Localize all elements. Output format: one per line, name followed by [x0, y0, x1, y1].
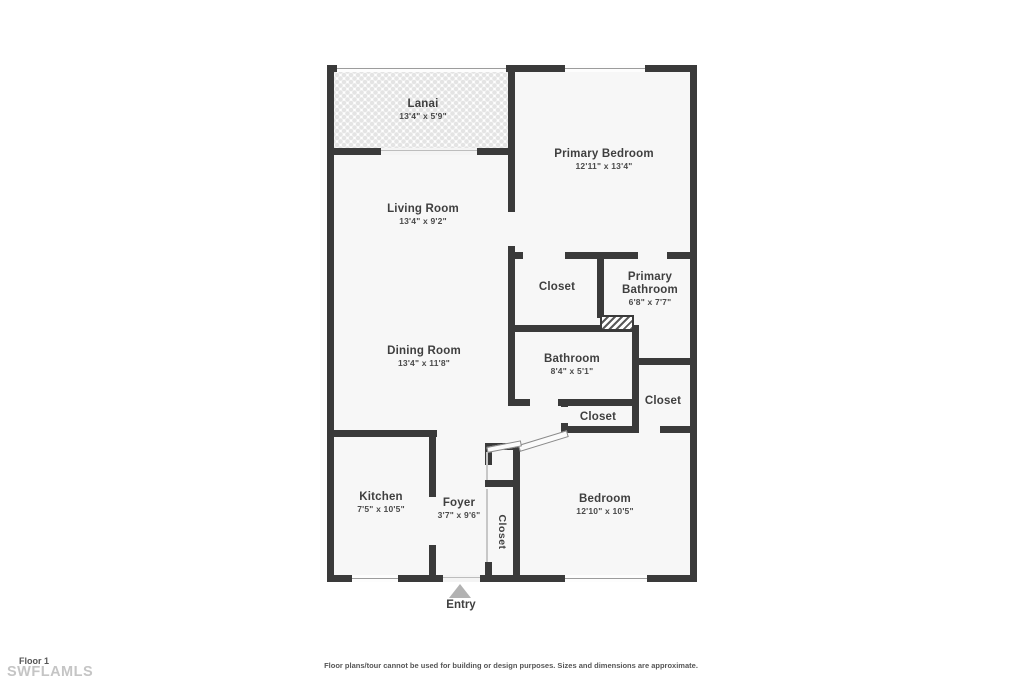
window-bedroom — [565, 575, 647, 582]
room-dims: 12'10" x 10'5" — [576, 506, 633, 517]
door-right-closet — [639, 426, 660, 433]
room-dims: 13'4" x 5'9" — [399, 111, 447, 122]
wall-foyer-closet-east — [513, 443, 520, 575]
room-label-primary-bedroom: Primary Bedroom 12'11" x 13'4" — [554, 148, 654, 172]
room-dims: 6'8" x 7'7" — [606, 297, 694, 308]
window-primary-bedroom — [565, 65, 645, 72]
wall-foyer-closet-divider — [485, 480, 520, 487]
room-label-bathroom: Bathroom 8'4" x 5'1" — [544, 353, 600, 377]
room-label-bedroom: Bedroom 12'10" x 10'5" — [576, 493, 633, 517]
room-name: Kitchen — [357, 491, 405, 504]
room-dims: 13'4" x 11'8" — [387, 358, 461, 369]
room-dims: 3'7" x 9'6" — [438, 510, 481, 521]
room-label-foyer-closet: Closet — [496, 514, 508, 549]
entry-label: Entry — [446, 599, 475, 611]
room-name: Lanai — [399, 98, 447, 111]
room-label-right-closet: Closet — [645, 395, 681, 408]
wall-bathroom-south — [508, 399, 639, 406]
wall-closet-bath-divider — [597, 252, 604, 318]
room-dims: 12'11" x 13'4" — [554, 161, 654, 172]
wall-bath-closet-east — [632, 325, 639, 433]
door-primary-bathroom — [638, 252, 667, 259]
room-dims: 13'4" x 9'2" — [387, 216, 459, 227]
room-label-living: Living Room 13'4" x 9'2" — [387, 203, 459, 227]
room-label-kitchen: Kitchen 7'5" x 10'5" — [357, 491, 405, 515]
disclaimer-text: Floor plans/tour cannot be used for buil… — [324, 661, 698, 670]
entry-arrow-icon — [449, 584, 471, 598]
wall-kitchen-north — [327, 430, 437, 437]
door-small-closet — [561, 407, 568, 423]
room-label-small-closet: Closet — [580, 411, 616, 424]
room-name: Primary Bedroom — [554, 148, 654, 161]
wall-small-closet-south — [561, 426, 639, 433]
slider-lanai-door — [381, 148, 477, 155]
room-name: Closet — [539, 281, 575, 294]
room-label-foyer: Foyer 3'7" x 9'6" — [438, 497, 481, 521]
wall-right-closet-north — [632, 358, 697, 365]
room-name: Closet — [580, 411, 616, 424]
room-name: Primary Bathroom — [606, 271, 694, 297]
door-hall-closet — [523, 252, 565, 259]
room-label-primary-bathroom: Primary Bathroom 6'8" x 7'7" — [606, 271, 694, 308]
room-name: Living Room — [387, 203, 459, 216]
window-kitchen — [352, 575, 398, 582]
opening-kitchen — [429, 497, 436, 545]
entry-door — [443, 575, 480, 582]
room-dims: 8'4" x 5'1" — [544, 366, 600, 377]
watermark-logo: SWFLAMLS — [7, 664, 93, 680]
room-label-hall-closet: Closet — [539, 281, 575, 294]
wall-outer-left — [327, 65, 334, 582]
closet-door-line-lower — [486, 489, 488, 562]
floorplan-canvas: Lanai 13'4" x 5'9" Living Room 13'4" x 9… — [0, 0, 1024, 682]
wall-foyer-closet-sw-cap — [485, 562, 492, 575]
room-label-dining: Dining Room 13'4" x 11'8" — [387, 345, 461, 369]
room-name: Dining Room — [387, 345, 461, 358]
shower-hatch — [600, 315, 634, 331]
room-name: Closet — [645, 395, 681, 408]
closet-door-line-upper — [486, 452, 488, 480]
wall-outer-right — [690, 65, 697, 582]
room-name: Bathroom — [544, 353, 600, 366]
door-primary-bedroom — [508, 212, 515, 246]
room-label-lanai: Lanai 13'4" x 5'9" — [399, 98, 447, 122]
door-bathroom — [530, 399, 558, 406]
room-name: Bedroom — [576, 493, 633, 506]
room-name: Foyer — [438, 497, 481, 510]
window-lanai — [337, 65, 506, 72]
room-dims: 7'5" x 10'5" — [357, 504, 405, 515]
